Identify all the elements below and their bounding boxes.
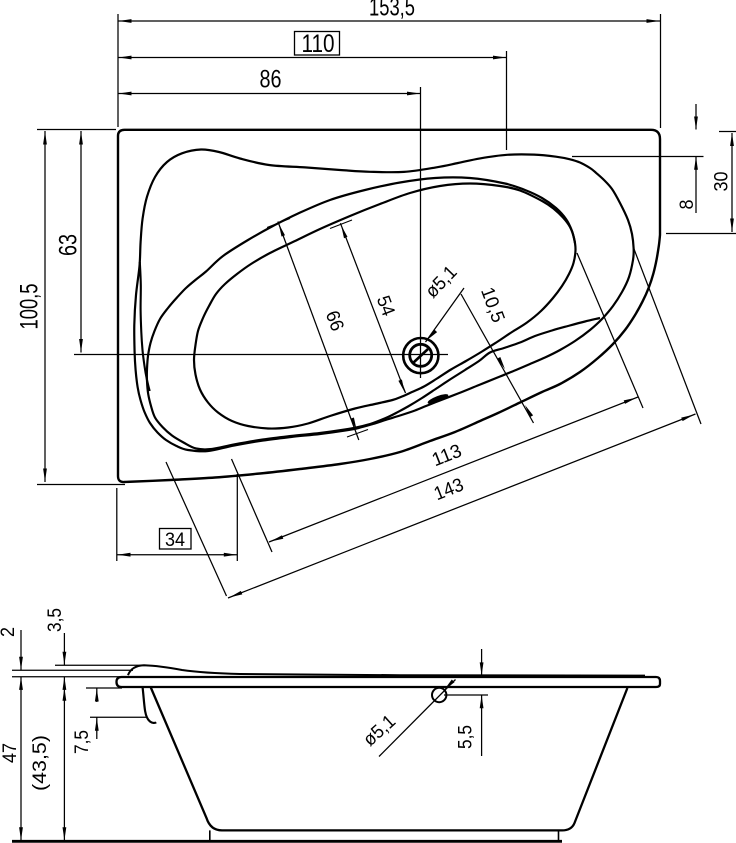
svg-text:ø5,1: ø5,1 (359, 711, 400, 751)
svg-text:10,5: 10,5 (476, 285, 508, 326)
svg-text:2: 2 (0, 627, 19, 637)
svg-text:ø5,1: ø5,1 (421, 262, 461, 302)
svg-text:143: 143 (431, 475, 467, 506)
svg-text:30: 30 (712, 172, 733, 192)
svg-text:100,5: 100,5 (15, 284, 43, 330)
svg-text:47: 47 (0, 743, 21, 763)
svg-text:153,5: 153,5 (369, 0, 415, 21)
svg-text:63: 63 (55, 234, 83, 256)
svg-text:66: 66 (321, 308, 348, 334)
svg-text:3,5: 3,5 (45, 608, 66, 632)
svg-text:7,5: 7,5 (72, 730, 93, 754)
svg-text:(43,5): (43,5) (30, 735, 51, 791)
svg-text:86: 86 (260, 66, 282, 94)
svg-text:5,5: 5,5 (456, 725, 477, 749)
svg-text:110: 110 (302, 30, 335, 58)
svg-text:8: 8 (677, 200, 698, 210)
svg-text:34: 34 (165, 530, 185, 551)
